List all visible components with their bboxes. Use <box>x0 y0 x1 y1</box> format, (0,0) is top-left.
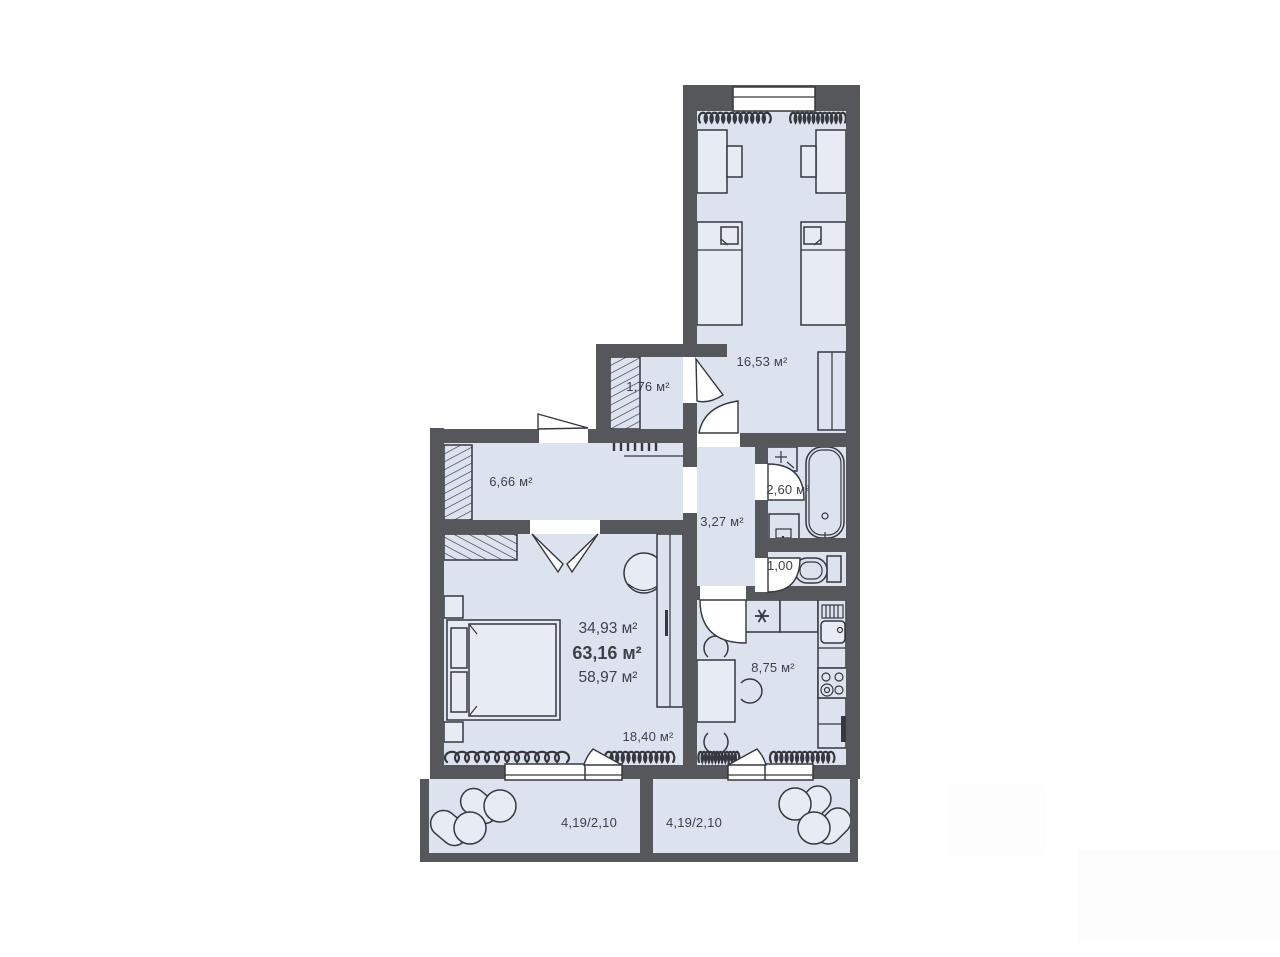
wall-segment <box>444 520 530 534</box>
toilet-icon <box>795 556 841 583</box>
desk-icon <box>697 130 727 193</box>
wall-segment <box>846 85 860 779</box>
armchair-icon <box>798 812 830 844</box>
wall-segment <box>588 429 683 443</box>
opening <box>683 358 697 403</box>
wall-segment <box>596 344 610 443</box>
kitchen-area-label: 8,75 м² <box>751 660 795 675</box>
wardrobe-icon <box>657 534 683 707</box>
single-bed-icon <box>801 222 846 325</box>
corridor-area-label: 3,27 м² <box>700 514 744 529</box>
wall-segment <box>683 85 697 345</box>
shelf-icon <box>444 534 517 560</box>
desk-chair-icon <box>801 146 816 177</box>
wall-segment <box>683 403 697 467</box>
floor-plan: 16,53 м² 1,76 м² 6,66 м² 2,60 м² 3,27 м²… <box>0 0 1280 957</box>
nightstand-icon <box>444 596 463 618</box>
wall-segment <box>600 520 683 534</box>
armchair-icon <box>454 812 486 844</box>
opening <box>698 433 740 447</box>
wall-segment <box>755 447 768 464</box>
single-bed-icon <box>697 222 742 325</box>
entry-opening <box>539 428 588 443</box>
bathtub-icon <box>806 447 844 539</box>
bedroom-area-label: 16,53 м² <box>736 354 787 369</box>
balcony-wall <box>640 765 653 862</box>
wall-segment <box>683 513 697 765</box>
wardrobe-icon <box>818 352 846 430</box>
watermark <box>950 785 1280 940</box>
chair-icon <box>741 679 762 703</box>
hallway-area-label: 6,66 м² <box>489 474 533 489</box>
floor-plan-page: 16,53 м² 1,76 м² 6,66 м² 2,60 м² 3,27 м²… <box>0 0 1280 957</box>
hallway-wardrobe-icon <box>444 445 472 520</box>
balcony-left-size-label: 4,19/2,10 <box>561 815 617 830</box>
closet-area-label: 1,76 м² <box>626 379 670 394</box>
watermark-blob <box>950 785 1045 855</box>
nightstand-icon <box>444 722 463 742</box>
balcony-wall <box>650 853 858 862</box>
living-area-total-label: 34,93 м² <box>579 620 638 637</box>
opening <box>700 586 746 600</box>
hallway-floor <box>444 443 683 520</box>
fridge-icon <box>745 600 780 632</box>
living-room-area-label: 18,40 м² <box>622 729 673 744</box>
opening <box>683 467 697 513</box>
wall-segment <box>430 429 539 443</box>
armchair-icon <box>484 790 516 822</box>
counter-icon <box>780 600 818 632</box>
balcony-wall <box>850 779 858 862</box>
reduced-area-label: 58,97 м² <box>579 669 638 686</box>
stove-icon <box>818 668 848 698</box>
radiator-icon <box>698 752 739 762</box>
balcony-wall <box>420 853 650 862</box>
wall-segment <box>755 538 846 552</box>
opening <box>530 520 600 534</box>
total-area-label: 63,16 м² <box>572 643 641 663</box>
double-bed-icon <box>447 620 560 720</box>
wall-segment <box>740 433 846 447</box>
desk-icon <box>816 130 846 193</box>
entry-door-leaf <box>538 414 588 429</box>
balcony-wall <box>420 779 429 862</box>
wc-area-label: 1,00 <box>767 558 793 573</box>
wall-segment <box>596 344 727 357</box>
desk-chair-icon <box>727 146 742 177</box>
window <box>733 87 815 111</box>
wall-segment <box>430 428 444 779</box>
balcony-right-size-label: 4,19/2,10 <box>666 815 722 830</box>
watermark-blob <box>1078 850 1280 940</box>
dining-table-icon <box>697 660 735 722</box>
bathroom-area-label: 2,60 м² <box>766 482 810 497</box>
